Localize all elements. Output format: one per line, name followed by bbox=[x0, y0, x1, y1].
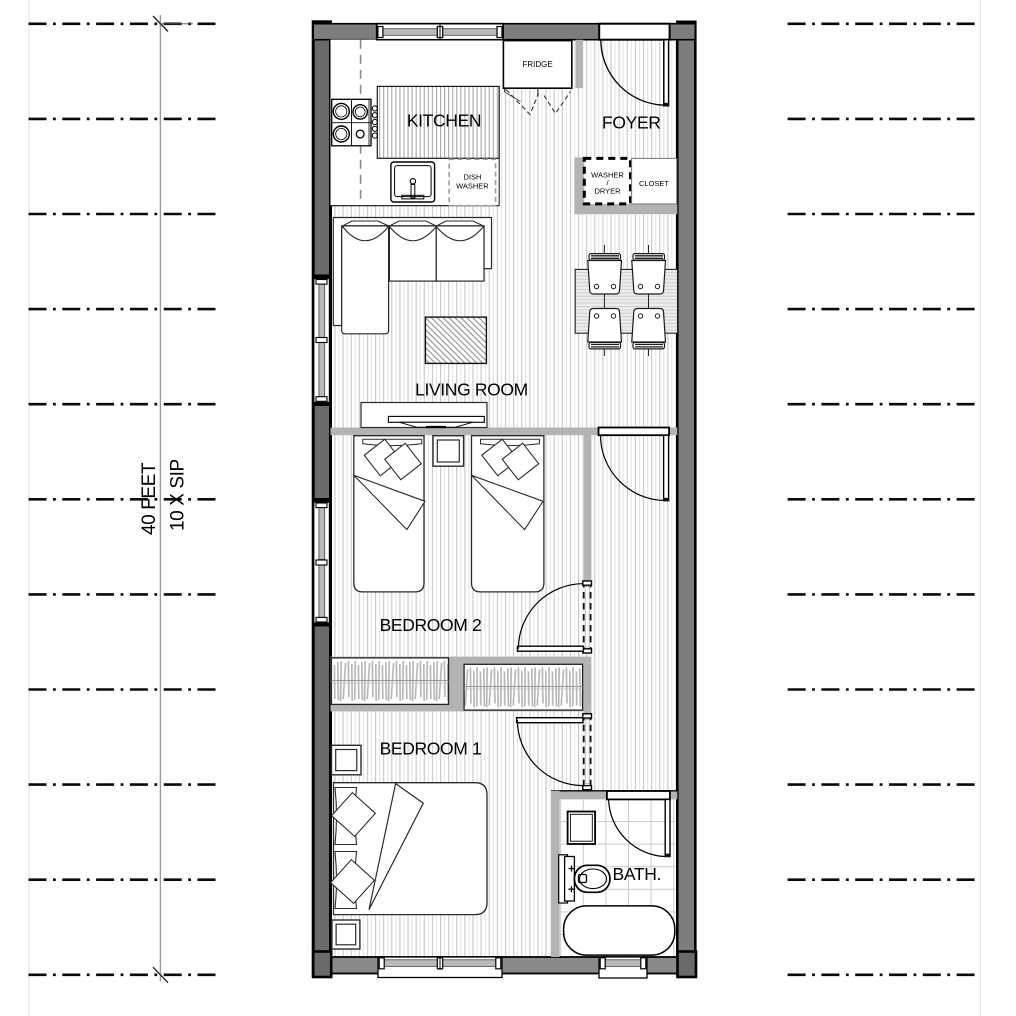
svg-text:FRIDGE: FRIDGE bbox=[522, 60, 552, 69]
svg-text:10 X SIP: 10 X SIP bbox=[168, 459, 189, 531]
svg-text:40 FEET: 40 FEET bbox=[139, 462, 160, 535]
svg-text:LIVING ROOM: LIVING ROOM bbox=[415, 379, 528, 399]
svg-text:BATH.: BATH. bbox=[613, 864, 662, 884]
svg-text:BEDROOM 1: BEDROOM 1 bbox=[380, 739, 482, 759]
svg-text:DISH: DISH bbox=[463, 173, 481, 182]
svg-text:DRYER: DRYER bbox=[594, 187, 621, 196]
svg-text:WASHER: WASHER bbox=[456, 182, 489, 191]
svg-text:CLOSET: CLOSET bbox=[639, 179, 669, 188]
svg-text:BEDROOM 2: BEDROOM 2 bbox=[380, 615, 482, 635]
svg-text:FOYER: FOYER bbox=[602, 113, 661, 133]
svg-text:KITCHEN: KITCHEN bbox=[407, 111, 481, 131]
